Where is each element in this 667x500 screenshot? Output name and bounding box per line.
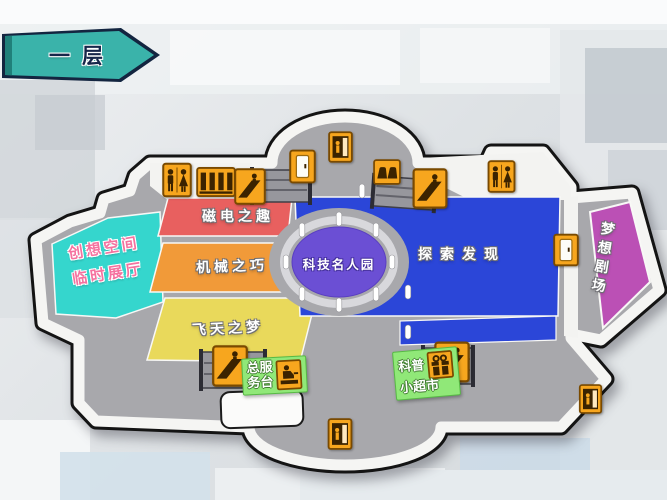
escalator-icon xyxy=(412,168,448,209)
door-icon xyxy=(289,149,316,184)
exit-door-icon xyxy=(327,418,353,450)
restroom-icon xyxy=(162,162,192,198)
zone-explore-strip-shape xyxy=(400,316,556,345)
gift-shop-label-line1: 科普 xyxy=(398,359,425,376)
escalator-icon xyxy=(234,168,266,205)
restroom-icon xyxy=(487,160,516,193)
museum-floor-map-page: 一层 创想空间 临时展厅 磁电之趣 机械之巧 飞天之梦 探索发现 科技名人园 梦… xyxy=(0,0,667,500)
floor-banner: 一层 xyxy=(0,24,170,88)
elevator-icon xyxy=(196,166,236,198)
zone-label-explore: 探索发现 xyxy=(377,244,547,264)
exit-door-icon xyxy=(328,131,353,163)
lockers-icon xyxy=(373,159,401,185)
door-icon xyxy=(553,232,579,268)
service-desk-badge: 总服 务台 xyxy=(241,355,308,395)
service-desk-label-line2: 务台 xyxy=(247,376,274,392)
gift-shop-badge: 科普 小超市 xyxy=(392,346,461,400)
zone-label-celebrity: 科技名人园 xyxy=(281,254,397,273)
gift-shop-label-line2: 小超市 xyxy=(400,379,440,397)
service-desk-icon xyxy=(275,359,303,391)
floor-banner-label: 一层 xyxy=(12,42,140,70)
exit-door-icon xyxy=(578,384,603,414)
zone-label-magnet: 磁电之趣 xyxy=(158,206,318,226)
gift-shop-icon xyxy=(426,350,454,380)
entrance-desk xyxy=(220,390,303,429)
